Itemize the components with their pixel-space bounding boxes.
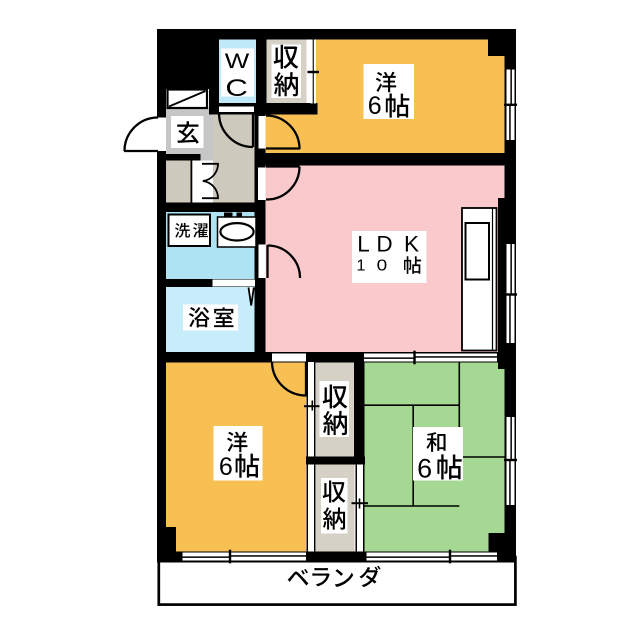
svg-text:K: K	[404, 232, 419, 257]
svg-text:C: C	[225, 75, 248, 102]
svg-text:6: 6	[219, 453, 233, 481]
svg-text:6: 6	[368, 92, 382, 120]
svg-text:6: 6	[417, 454, 432, 484]
svg-text:0: 0	[377, 257, 388, 274]
svg-text:D: D	[376, 232, 392, 257]
svg-text:L: L	[357, 232, 370, 257]
svg-text:W: W	[225, 50, 250, 73]
svg-text:1: 1	[357, 257, 366, 274]
